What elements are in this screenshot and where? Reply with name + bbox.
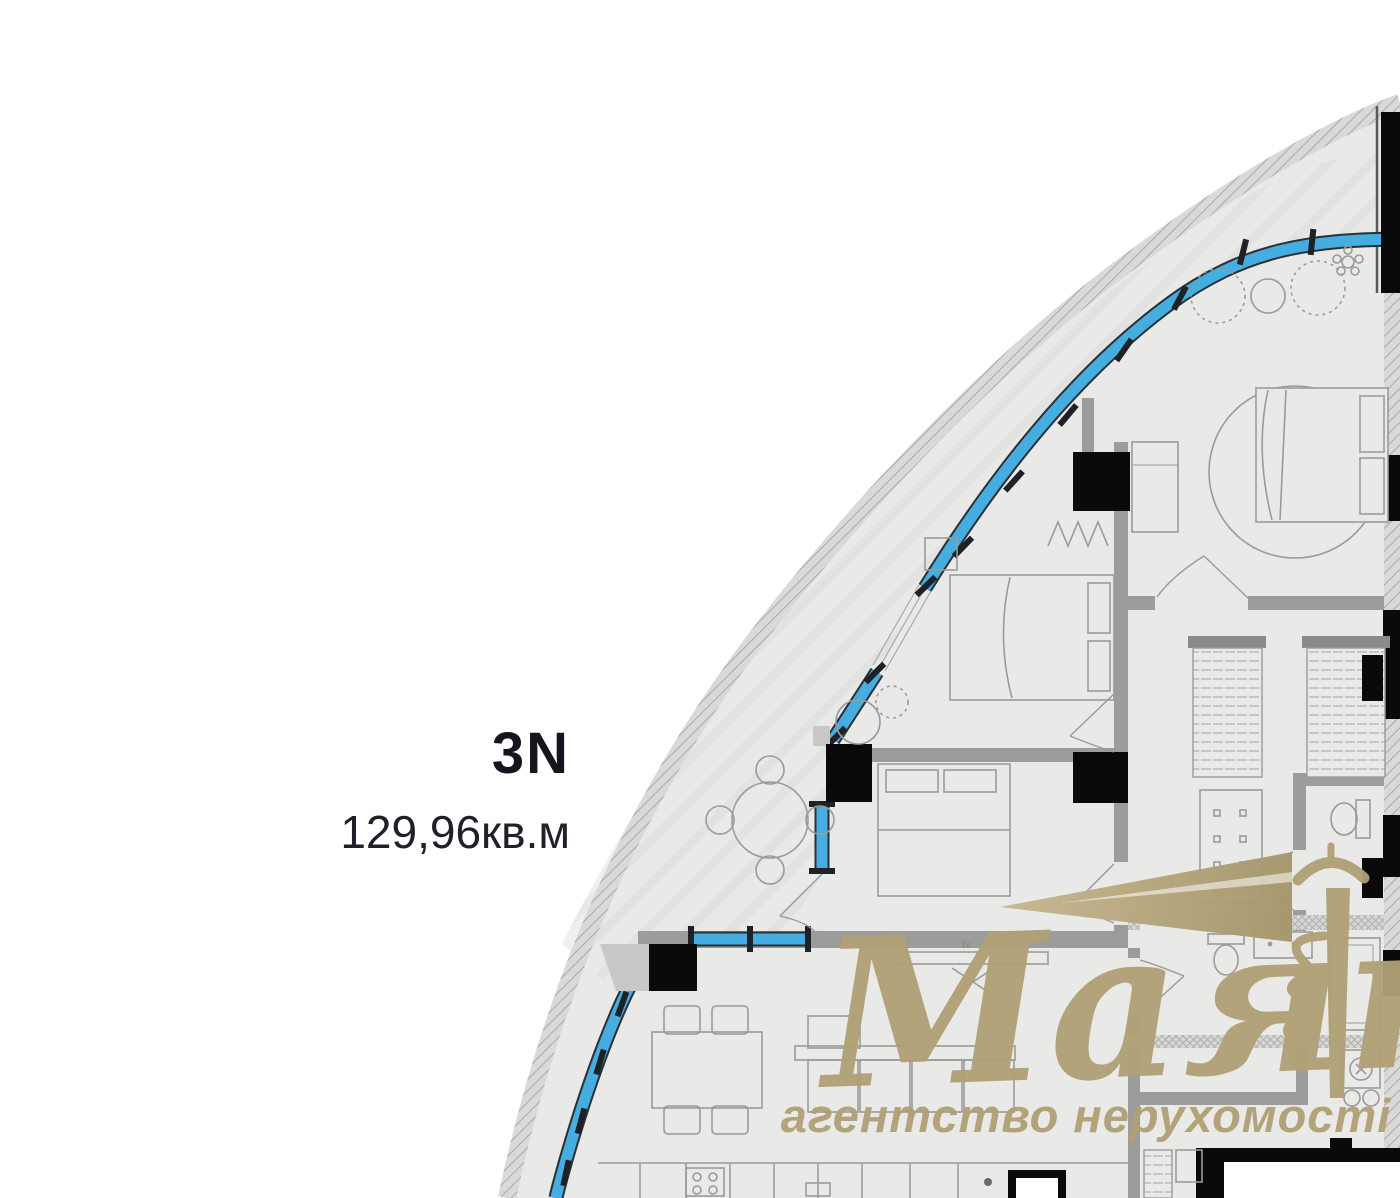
wall-jog	[813, 726, 830, 746]
column-ne	[1381, 112, 1400, 293]
watermark-tagline: агентство нерухомості	[781, 1089, 1392, 1142]
oven-glass	[1016, 1178, 1058, 1198]
hall-cabinet-body	[1144, 1150, 1172, 1198]
wall-stub-above-column	[1082, 398, 1094, 454]
wardrobe-right-top	[1302, 636, 1390, 648]
wall-hall-west-c	[1128, 1150, 1140, 1198]
grinder	[984, 1178, 992, 1186]
column-living-west	[649, 944, 697, 991]
wardrobe-left-top	[1188, 636, 1266, 648]
east-wall-hatch-3	[1384, 719, 1400, 815]
wardrobe-left-body	[1193, 648, 1262, 777]
wall-bedroom1-south-a	[1128, 596, 1155, 610]
wall-bedroom3-east-a	[1114, 803, 1128, 862]
unit-area-label: 129,96кв.м	[340, 806, 570, 858]
column-e3	[1383, 815, 1400, 877]
shaft-void	[1224, 1162, 1400, 1198]
column-bedroom2	[1073, 452, 1130, 511]
wall-wc-west-a	[1293, 786, 1306, 850]
bed-1	[1256, 388, 1388, 522]
floorplan-image: tv	[0, 0, 1400, 1198]
wall-bedroom1-south-b	[1248, 596, 1400, 610]
column-hall	[1073, 752, 1128, 803]
bed-2	[950, 575, 1114, 700]
unit-number-label: 3N	[492, 721, 570, 786]
floorplan-page: tv	[0, 0, 1400, 1198]
column-terrace-mid	[826, 744, 872, 802]
wc-shaft-a	[1362, 655, 1383, 701]
unit-info: 3N 129,96кв.м	[340, 721, 570, 858]
wardrobe-left	[1188, 636, 1266, 777]
east-wall-hatch-2	[1384, 521, 1400, 610]
